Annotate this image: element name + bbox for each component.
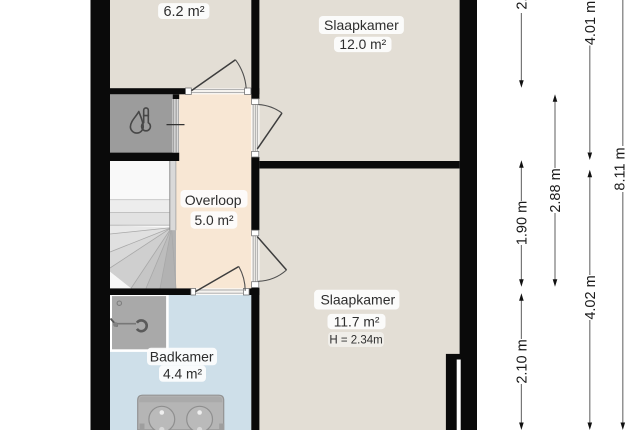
svg-text:4.02 m: 4.02 m [583,275,599,319]
svg-text:4.4 m²: 4.4 m² [163,366,203,381]
svg-text:2.59 m: 2.59 m [515,0,531,10]
svg-text:4.01 m: 4.01 m [583,1,599,45]
svg-text:Overloop: Overloop [185,192,242,208]
svg-text:1.90 m: 1.90 m [515,201,531,245]
svg-text:H = 2.34m: H = 2.34m [329,335,382,347]
svg-text:Badkamer: Badkamer [150,349,214,365]
svg-text:Slaapkamer: Slaapkamer [324,17,399,33]
svg-text:6.2 m²: 6.2 m² [163,4,204,20]
svg-text:11.7 m²: 11.7 m² [334,314,380,329]
svg-text:8.11 m: 8.11 m [612,147,628,190]
svg-text:Slaapkamer: Slaapkamer [320,291,395,307]
svg-text:5.0 m²: 5.0 m² [194,213,234,228]
svg-text:2.10 m: 2.10 m [515,339,531,383]
svg-text:12.0 m²: 12.0 m² [339,37,386,52]
svg-text:2.88 m: 2.88 m [548,168,564,212]
